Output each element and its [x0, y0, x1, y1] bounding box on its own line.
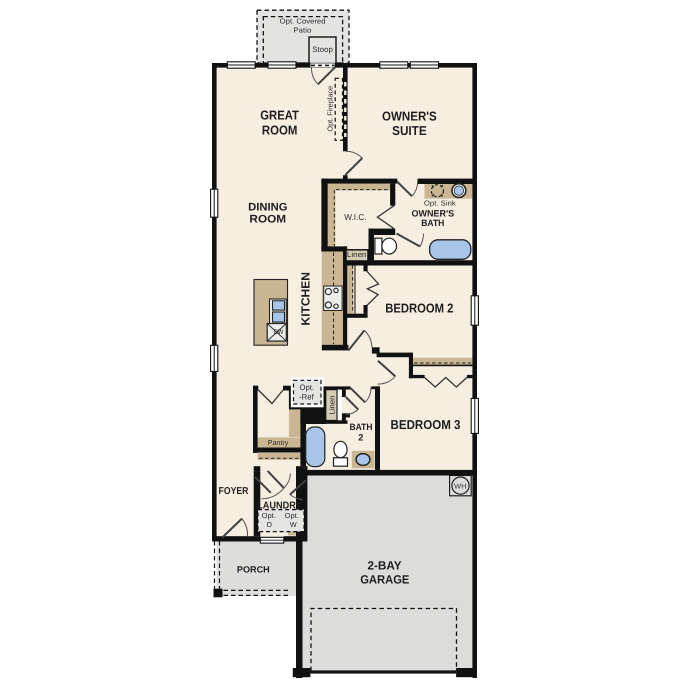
svg-text:WH: WH — [454, 484, 467, 491]
svg-text:DINING: DINING — [248, 201, 287, 213]
svg-text:Opt. Covered: Opt. Covered — [280, 17, 326, 26]
svg-text:GARAGE: GARAGE — [360, 572, 409, 586]
svg-text:Opt. Sink: Opt. Sink — [424, 198, 456, 207]
svg-text:ROOM: ROOM — [249, 214, 286, 226]
svg-text:Linen: Linen — [328, 396, 337, 415]
svg-text:Patio: Patio — [293, 25, 311, 34]
svg-text:Stoop: Stoop — [312, 45, 333, 54]
svg-text:BEDROOM 3: BEDROOM 3 — [391, 417, 461, 432]
svg-text:W: W — [290, 520, 297, 529]
svg-text:Opt.: Opt. — [300, 383, 315, 392]
svg-text:Opt. Fireplace: Opt. Fireplace — [326, 86, 335, 132]
svg-text:FOYER: FOYER — [219, 486, 250, 497]
svg-text:2-BAY: 2-BAY — [367, 559, 401, 573]
svg-text:SUITE: SUITE — [392, 123, 427, 138]
svg-text:DW: DW — [274, 329, 284, 336]
svg-text:D: D — [267, 520, 272, 529]
svg-text:W.I.C.: W.I.C. — [344, 212, 366, 222]
svg-text:OWNER'S: OWNER'S — [411, 208, 454, 218]
svg-text:BATH: BATH — [350, 422, 373, 432]
svg-text:Pantry: Pantry — [268, 438, 289, 447]
svg-text:ROOM: ROOM — [262, 122, 298, 137]
svg-text:PORCH: PORCH — [237, 565, 270, 575]
svg-text:KITCHEN: KITCHEN — [299, 272, 313, 325]
svg-text:LAUNDRY: LAUNDRY — [257, 501, 302, 512]
svg-text:Opt.: Opt. — [285, 511, 299, 520]
svg-text:GREAT: GREAT — [260, 108, 299, 123]
svg-text:2: 2 — [358, 433, 363, 443]
svg-text:BATH: BATH — [421, 218, 444, 228]
svg-text:Linen: Linen — [347, 250, 367, 259]
svg-text:BEDROOM 2: BEDROOM 2 — [385, 300, 453, 315]
svg-text:OWNER'S: OWNER'S — [382, 108, 437, 123]
svg-text:Opt.: Opt. — [262, 511, 276, 520]
svg-text:-Ref: -Ref — [299, 393, 315, 402]
